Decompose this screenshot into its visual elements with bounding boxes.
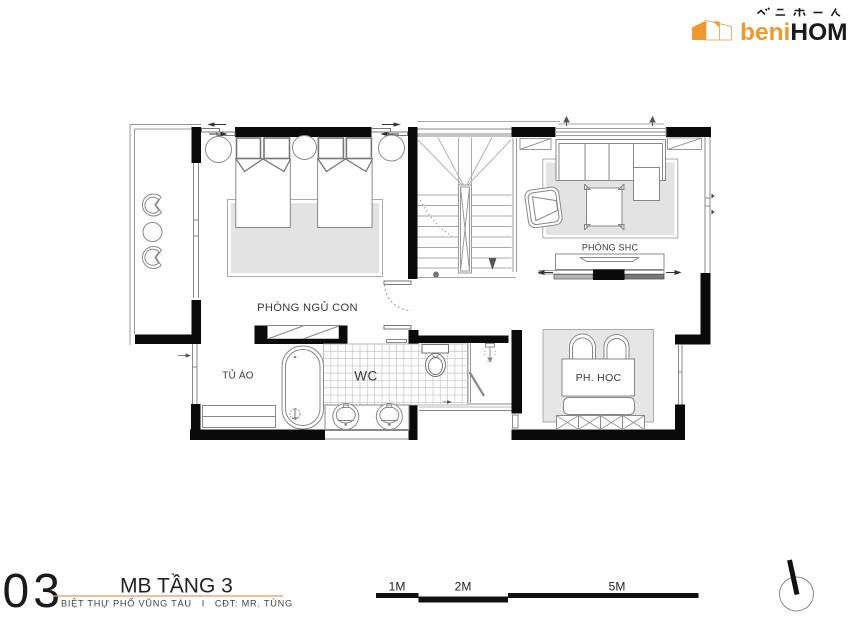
- svg-text:PHÒNG SHC: PHÒNG SHC: [582, 243, 639, 253]
- svg-text:2M: 2M: [455, 580, 472, 594]
- svg-text:beniHOM: beniHOM: [740, 19, 848, 46]
- svg-text:WC: WC: [354, 369, 378, 384]
- svg-text:03: 03: [3, 565, 64, 618]
- svg-text:5M: 5M: [609, 580, 626, 594]
- svg-text:PHÒNG NGỦ CON: PHÒNG NGỦ CON: [257, 301, 358, 314]
- svg-text:PH. HỌC: PH. HỌC: [576, 372, 622, 384]
- svg-text:BIỆT THỰ PHỐ VŨNG TÀU I CĐ: BIỆT THỰ PHỐ VŨNG TÀU I CĐT: MR. TÙNG: [61, 598, 293, 609]
- svg-text:TỦ ÁO: TỦ ÁO: [222, 369, 254, 382]
- svg-text:MB TẦNG 3: MB TẦNG 3: [120, 575, 233, 598]
- svg-text:1M: 1M: [389, 580, 406, 594]
